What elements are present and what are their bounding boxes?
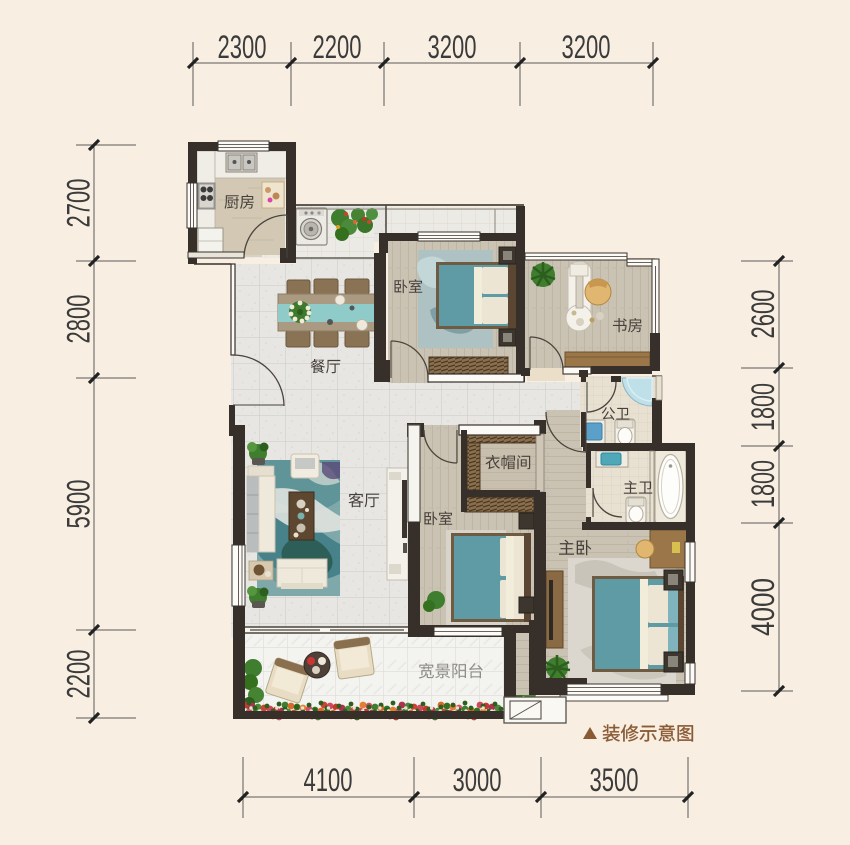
svg-text:2700: 2700 <box>61 179 97 228</box>
svg-text:3000: 3000 <box>453 762 502 798</box>
svg-text:2200: 2200 <box>313 29 362 65</box>
svg-text:3500: 3500 <box>590 762 639 798</box>
svg-text:3200: 3200 <box>428 29 477 65</box>
svg-text:2800: 2800 <box>61 295 97 344</box>
svg-text:2600: 2600 <box>745 290 781 339</box>
svg-text:4100: 4100 <box>304 762 353 798</box>
svg-text:1800: 1800 <box>745 383 781 431</box>
svg-text:2300: 2300 <box>218 29 267 65</box>
svg-text:5900: 5900 <box>61 480 97 529</box>
svg-text:4000: 4000 <box>745 578 781 636</box>
svg-text:2200: 2200 <box>61 650 97 699</box>
svg-text:1800: 1800 <box>745 460 781 508</box>
svg-text:3200: 3200 <box>562 29 611 65</box>
